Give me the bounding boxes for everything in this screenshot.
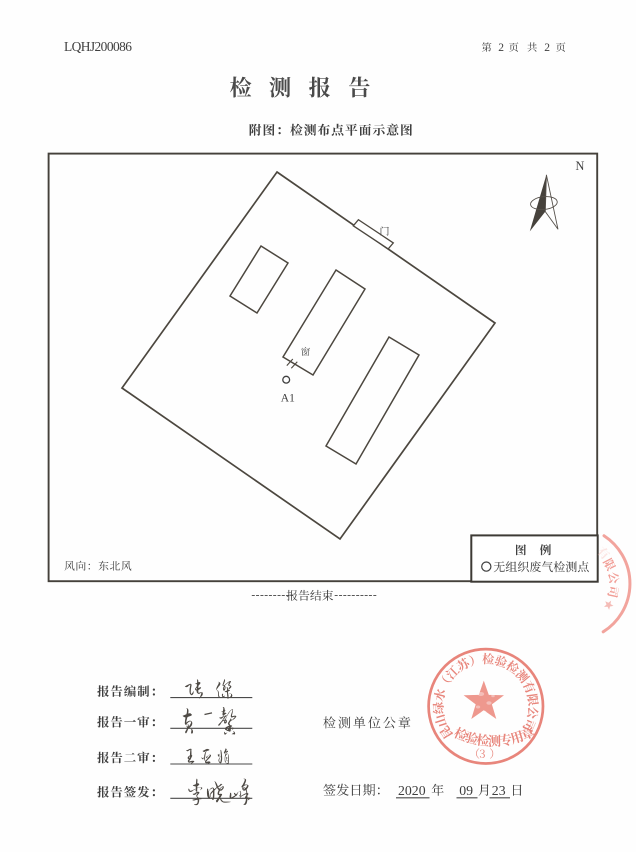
svg-text:LQHJ200086: LQHJ200086 [64,39,132,54]
svg-text:2: 2 [544,42,550,54]
svg-text:2: 2 [498,42,504,54]
svg-text:2020: 2020 [398,783,426,798]
svg-text:----------: ---------- [334,590,377,602]
svg-text:09: 09 [459,783,473,798]
svg-text:A1: A1 [281,392,295,404]
svg-text:23: 23 [492,783,506,798]
svg-text:N: N [576,159,585,173]
